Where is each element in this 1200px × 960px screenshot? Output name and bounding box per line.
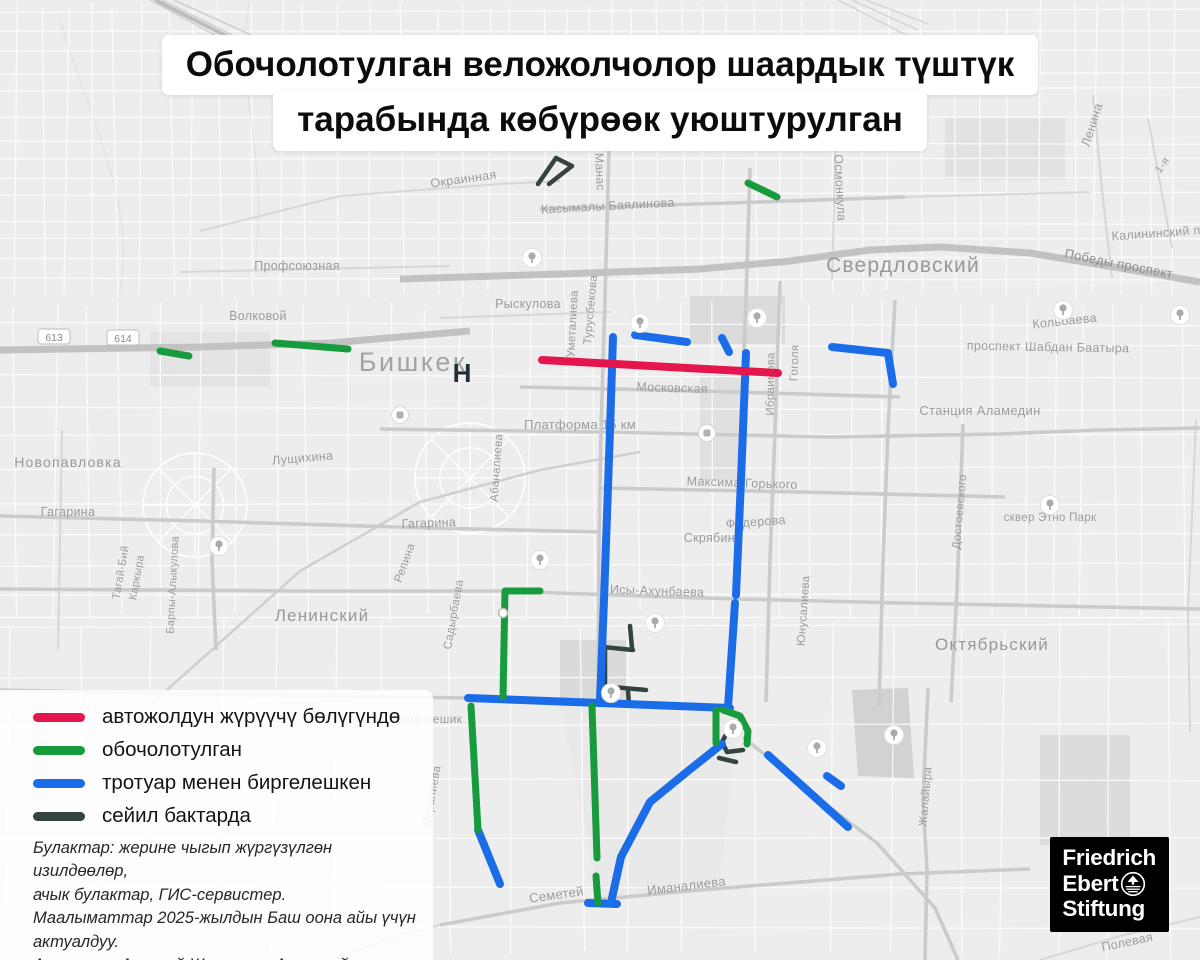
street-label: Октябрьский <box>935 635 1049 654</box>
street-label: Ленинский <box>275 606 370 625</box>
road-shield: 613 <box>38 329 70 344</box>
street-label: Московская <box>636 380 708 396</box>
tree-icon <box>523 249 542 268</box>
route-green <box>592 706 597 858</box>
street-label: Волковой <box>229 309 287 323</box>
street-label: Гагарина <box>41 505 95 519</box>
legend-item-parks: сейил бактарда <box>33 804 423 828</box>
transit-icon <box>699 425 716 442</box>
svg-text:614: 614 <box>114 333 132 345</box>
logo-line-1: Friedrich <box>1062 845 1156 870</box>
landmark-h-marker: Н <box>453 358 472 388</box>
title-line-2: тарабында көбүрөөк уюштурулган <box>273 90 927 150</box>
infographic-canvas: 613614ОкраиннаяКасымалы БаялиноваМанасОс… <box>0 0 1200 960</box>
legend-swatch-dark <box>33 812 85 821</box>
legend-swatch-blue <box>33 779 85 788</box>
source-line: Маалыматтар 2025-жылдын Баш оона айы үчү… <box>33 907 423 930</box>
map-title: Обочолотулган веложолчолор шаардык түштү… <box>0 35 1200 151</box>
road-shield: 614 <box>107 330 139 345</box>
legend-swatch-red <box>33 713 85 722</box>
street-label: Рыскулова <box>495 297 561 311</box>
tree-icon <box>631 314 650 333</box>
street-label: Бишкек <box>359 347 467 377</box>
legend-item-shared-sidewalk: тротуар менен биргелешкен <box>33 771 423 795</box>
logo-line-3: Stiftung <box>1062 896 1145 921</box>
legend-item-segregated: обочолотулган <box>33 738 423 762</box>
transit-icon <box>392 407 409 424</box>
tree-icon <box>1171 306 1190 325</box>
street-label: Свердловский <box>826 254 980 277</box>
legend-label-dark: сейил бактарда <box>102 804 251 828</box>
route-blue <box>588 903 617 904</box>
title-line-1: Обочолотулган веложолчолор шаардык түштү… <box>162 35 1039 95</box>
tree-icon <box>1041 496 1060 515</box>
svg-text:613: 613 <box>45 332 63 344</box>
tree-icon <box>808 739 827 758</box>
street-label: Скрябина <box>684 531 742 545</box>
street-label: Платформа 15 км <box>524 417 636 432</box>
source-line: ачык булактар, ГИС-сервистер. <box>33 884 423 907</box>
legend-item-on-roadway: автожолдун жүрүүчү бөлүгүндө <box>33 705 423 729</box>
tree-icon <box>646 614 665 633</box>
source-line: Авторлор: Алексей Журавлев, Алтынай Ного… <box>33 954 423 960</box>
street-label: Ибраимова <box>764 352 777 416</box>
route-dark <box>603 647 633 650</box>
street-label: Станция Аламедин <box>919 403 1040 418</box>
legend-label-red: автожолдун жүрүүчү бөлүгүндө <box>102 705 400 729</box>
tree-icon <box>210 537 229 556</box>
street-label: Профсоюзная <box>254 259 340 273</box>
sources-note: Булактар: жерине чыгып жүргүзүлгөн изилд… <box>33 837 423 960</box>
street-label: Манас <box>592 153 608 191</box>
stop-marker <box>499 609 508 618</box>
street-label: Гагарина <box>401 515 456 531</box>
legend-label-green: обочолотулган <box>102 738 242 762</box>
legend-label-blue: тротуар менен биргелешкен <box>102 771 371 795</box>
fes-sail-emblem-icon <box>1120 871 1146 897</box>
tree-icon <box>602 684 621 703</box>
street-label: Гоголя <box>788 344 801 381</box>
legend-swatch-green <box>33 746 85 755</box>
tree-icon <box>748 309 767 328</box>
friedrich-ebert-stiftung-logo: Friedrich Ebert Stiftung <box>1050 837 1169 932</box>
tree-icon <box>1054 301 1073 320</box>
logo-line-2: Ebert <box>1062 872 1118 896</box>
route-green <box>596 876 598 903</box>
legend-panel: автожолдун жүрүүчү бөлүгүндө обочолотулг… <box>0 690 433 960</box>
route-green <box>160 351 189 356</box>
source-line: актуалдуу. <box>33 931 423 954</box>
tree-icon <box>724 720 743 739</box>
street-label: Новопавловка <box>14 454 122 470</box>
route-dark <box>630 626 632 648</box>
tree-icon <box>885 726 904 745</box>
tree-icon <box>531 551 550 570</box>
source-line: Булактар: жерине чыгып жүргүзүлгөн изилд… <box>33 837 423 884</box>
street-label: проспект Шабдан Баатыра <box>967 339 1130 356</box>
